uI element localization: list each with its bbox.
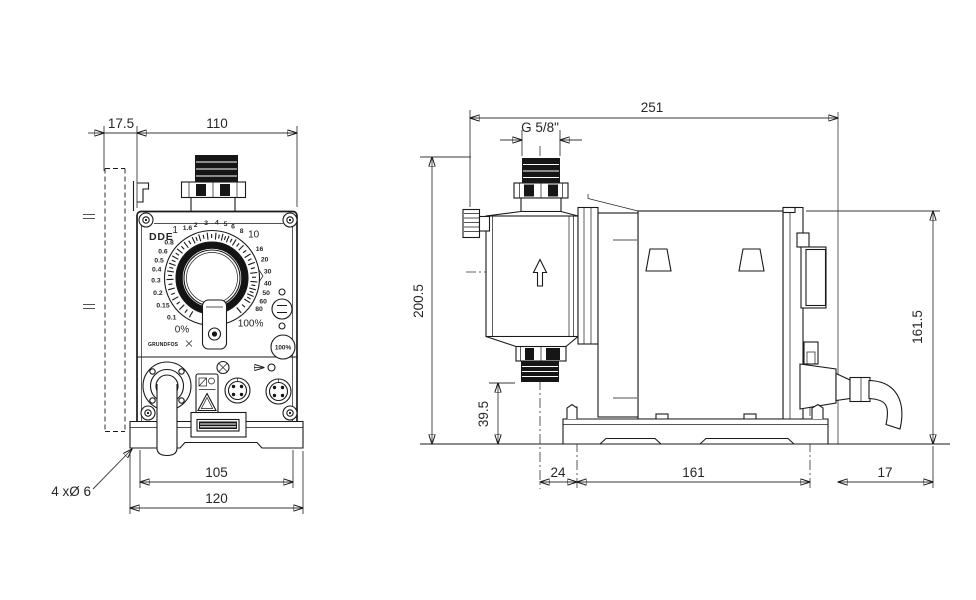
dial-scale-label: 100% (238, 319, 264, 330)
signal-connector-right[interactable] (266, 379, 291, 404)
dial-tick (250, 281, 257, 282)
dial-scale-label: 1.6 (183, 225, 193, 232)
front-view: 0%0.10.150.20.30.40.50.60.811.6234568101… (51, 116, 303, 514)
dial-scale-label: 2 (194, 222, 198, 229)
signal-connector-left[interactable] (225, 378, 250, 403)
dial-scale-label: 50 (262, 290, 270, 297)
power-cable (869, 381, 902, 430)
dial-scale-label: 10 (248, 229, 260, 240)
front-discharge-connection (182, 155, 246, 212)
dial-scale-label: 80 (255, 306, 263, 313)
dim-mounting-holes: 4 xØ 6 (51, 484, 91, 499)
brand-logo: GRUNDFOS (148, 342, 179, 348)
dial-tick (169, 284, 173, 285)
dial-scale-label: 0.5 (154, 257, 164, 264)
dial-scale-label: 40 (264, 280, 272, 287)
side-view: 251 G 5/8" 200.5 39.5 161.5 24 161 17 (411, 100, 950, 489)
model-label: DDE (149, 231, 174, 243)
prime-button-label: 100% (275, 345, 292, 352)
dim-overall-depth: 251 (641, 100, 664, 115)
dial-pointer-knob[interactable] (203, 300, 227, 349)
dial-scale-label: 4 (215, 220, 219, 227)
dim-housing-height: 161.5 (910, 310, 925, 344)
dial-scale-label: 20 (261, 256, 269, 263)
dial-scale-label: 5 (224, 221, 228, 228)
dial-tick (203, 235, 204, 239)
dim-cable-overhang: 17 (877, 465, 892, 480)
dim-housing-width: 110 (206, 116, 228, 131)
dial-tick (251, 285, 255, 286)
dim-overall-height: 200.5 (411, 284, 426, 318)
dial-tick (219, 235, 220, 239)
dial-scale-label: 0.15 (156, 303, 169, 310)
head-bracket (578, 208, 598, 345)
dim-foot-spacing: 161 (682, 465, 705, 480)
dim-head-center-to-foot: 24 (550, 465, 566, 480)
dial-scale-label: 30 (264, 269, 272, 276)
dial-scale-label: 0.1 (167, 314, 177, 321)
warning-label (196, 374, 218, 414)
dim-bracket-offset: 17.5 (108, 116, 134, 131)
dial-tick (215, 233, 216, 240)
dial-scale-label: 8 (240, 228, 244, 235)
dial-scale-label: 3 (204, 220, 208, 227)
dial-scale-label: 16 (256, 246, 264, 253)
drain-tube (157, 384, 177, 456)
dial-scale-label: 0.3 (151, 278, 161, 285)
prime-100-button[interactable]: 100% (271, 335, 295, 359)
dial-scale-label: 6 (231, 224, 235, 231)
dial-scale-label: 0% (175, 325, 190, 336)
motor-housing (588, 194, 803, 421)
dim-valve-to-base: 39.5 (476, 401, 491, 427)
dim-base-width: 120 (205, 491, 228, 506)
dosing-head (463, 158, 578, 382)
rear-dial-knob (797, 233, 826, 308)
dial-scale-label: 0.6 (158, 248, 168, 255)
drawing-svg: 0%0.10.150.20.30.40.50.60.811.6234568101… (0, 0, 976, 600)
dim-hole-spacing: 105 (205, 465, 228, 480)
dial-scale-label: 60 (259, 298, 267, 305)
dim-connection-thread: G 5/8" (521, 120, 559, 135)
dial-scale-label: 0.4 (152, 267, 162, 274)
technical-drawing-page: 0%0.10.150.20.30.40.50.60.811.6234568101… (0, 0, 976, 600)
dial-scale-label: 0.2 (153, 290, 163, 297)
